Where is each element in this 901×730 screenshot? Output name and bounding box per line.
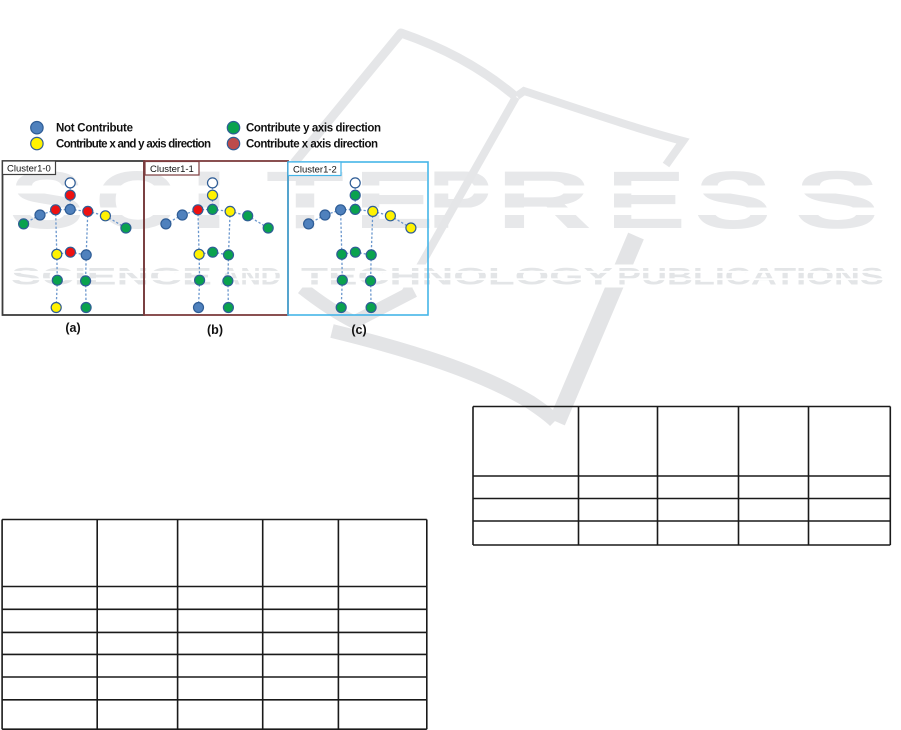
svg-text:(c): (c) bbox=[351, 323, 366, 337]
svg-text:Contribute x and y axis direct: Contribute x and y axis direction bbox=[56, 139, 211, 151]
svg-text:R: R bbox=[496, 155, 592, 246]
svg-text:Contribute x axis direction: Contribute x axis direction bbox=[246, 139, 378, 151]
svg-text:Contribute y axis direction: Contribute y axis direction bbox=[246, 123, 381, 135]
svg-text:(b): (b) bbox=[207, 323, 223, 337]
svg-text:Not Contribute: Not Contribute bbox=[56, 123, 133, 135]
svg-text:E: E bbox=[606, 155, 686, 246]
svg-text:Cluster1-2: Cluster1-2 bbox=[293, 165, 337, 176]
svg-text:(a): (a) bbox=[65, 321, 80, 335]
svg-text:Cluster1-1: Cluster1-1 bbox=[150, 164, 194, 175]
svg-text:SCIENCE: SCIENCE bbox=[11, 264, 212, 291]
svg-text:TECHNOLOGY: TECHNOLOGY bbox=[301, 264, 613, 291]
svg-text:S: S bbox=[794, 155, 880, 246]
svg-text:Cluster1-0: Cluster1-0 bbox=[7, 164, 51, 175]
svg-text:S: S bbox=[694, 155, 772, 246]
svg-text:E: E bbox=[354, 155, 434, 246]
svg-text:PUBLICATIONS: PUBLICATIONS bbox=[617, 264, 884, 291]
